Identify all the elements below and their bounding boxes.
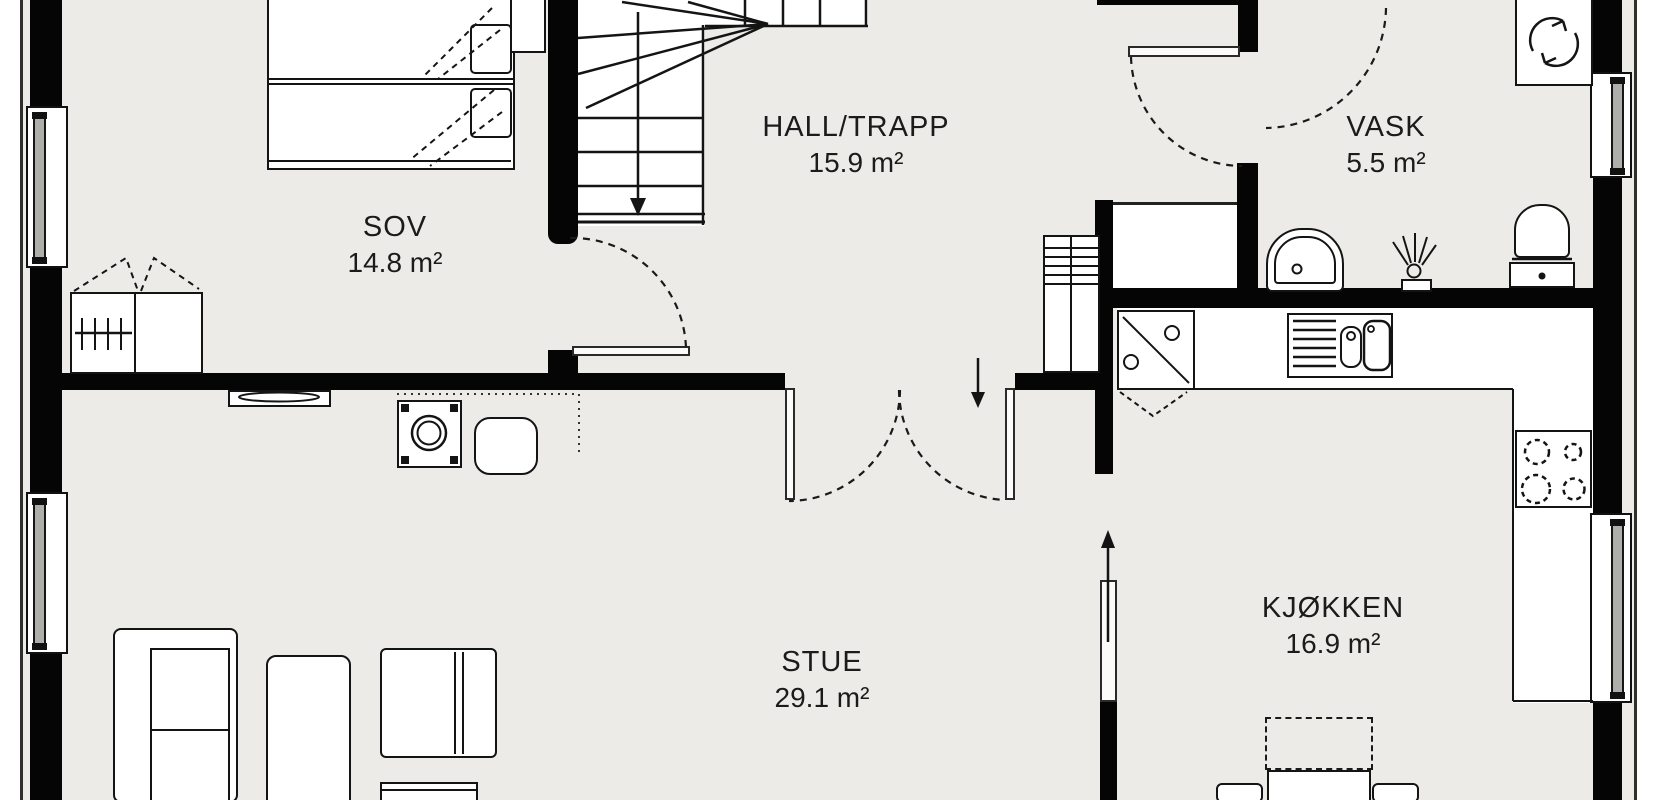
window-vask bbox=[1590, 72, 1632, 178]
room-label-vask: VASK 5.5 m² bbox=[1346, 111, 1425, 179]
room-name: HALL/TRAPP bbox=[762, 111, 949, 144]
door-leaf-hall-top bbox=[1128, 46, 1240, 57]
sofa-module bbox=[266, 655, 351, 800]
window-stue bbox=[26, 492, 68, 654]
door-leaf-sov bbox=[572, 346, 690, 356]
dining-chair bbox=[1372, 783, 1419, 800]
room-label-stue: STUE 29.1 m² bbox=[775, 646, 870, 714]
door-leaf-kjokken bbox=[1100, 580, 1117, 702]
wall-vask-door-jamb bbox=[1238, 0, 1258, 52]
kitchen-sink-icon bbox=[1287, 313, 1393, 378]
door-leaf-double-right bbox=[1005, 388, 1015, 500]
room-area: 29.1 m² bbox=[775, 682, 870, 714]
stairwell bbox=[578, 0, 705, 226]
wall-stair-west bbox=[548, 0, 578, 244]
footstool bbox=[380, 782, 478, 800]
toilet-tank bbox=[1509, 262, 1575, 288]
room-name: STUE bbox=[775, 646, 870, 679]
room-name: SOV bbox=[348, 211, 443, 244]
room-label-kjokken: KJØKKEN 16.9 m² bbox=[1262, 592, 1404, 660]
dining-chair bbox=[1216, 783, 1263, 800]
coat-closet bbox=[1043, 235, 1100, 373]
wall-hall-top-edge bbox=[1097, 0, 1240, 5]
dining-table bbox=[1267, 770, 1371, 800]
cooktop-burners-icon bbox=[1515, 430, 1592, 508]
room-area: 16.9 m² bbox=[1262, 628, 1404, 660]
wood-stove-icon bbox=[397, 400, 462, 468]
wardrobe bbox=[70, 292, 203, 374]
wall-sov-south bbox=[30, 373, 785, 390]
faucet-symbol-base bbox=[1401, 279, 1432, 292]
side-table bbox=[474, 417, 538, 475]
room-name: VASK bbox=[1346, 111, 1425, 144]
pillow bbox=[470, 88, 512, 138]
dining-table-extension bbox=[1265, 717, 1373, 770]
window-kjokken bbox=[1590, 513, 1632, 703]
floor-plan: SOV 14.8 m² HALL/TRAPP 15.9 m² VASK 5.5 … bbox=[0, 0, 1670, 800]
facade-line-west bbox=[20, 0, 23, 800]
room-area: 15.9 m² bbox=[762, 147, 949, 179]
facade-line-east bbox=[1634, 0, 1637, 800]
room-area: 14.8 m² bbox=[348, 247, 443, 279]
pillow bbox=[470, 24, 512, 74]
washbasin-inner bbox=[1274, 236, 1336, 284]
stair-top-run bbox=[705, 0, 868, 27]
door-leaf-double-left bbox=[785, 388, 795, 500]
tv-bench bbox=[228, 390, 331, 407]
wall-stue-kjokken-south bbox=[1100, 702, 1117, 800]
window-sov bbox=[26, 106, 68, 268]
wall-vask-west bbox=[1237, 163, 1258, 308]
shaft-niche bbox=[1113, 202, 1237, 288]
wall-kitchen-north bbox=[1095, 288, 1593, 308]
room-label-hall: HALL/TRAPP 15.9 m² bbox=[762, 111, 949, 179]
corner-cabinet bbox=[1117, 310, 1195, 390]
room-area: 5.5 m² bbox=[1346, 147, 1425, 179]
room-label-sov: SOV 14.8 m² bbox=[348, 211, 443, 279]
armchair bbox=[380, 648, 497, 758]
shower-drain-swirl-icon bbox=[1515, 0, 1593, 86]
room-name: KJØKKEN bbox=[1262, 592, 1404, 625]
nightstand bbox=[510, 0, 546, 53]
sofa-seat bbox=[150, 648, 230, 800]
toilet-icon bbox=[1514, 204, 1570, 258]
